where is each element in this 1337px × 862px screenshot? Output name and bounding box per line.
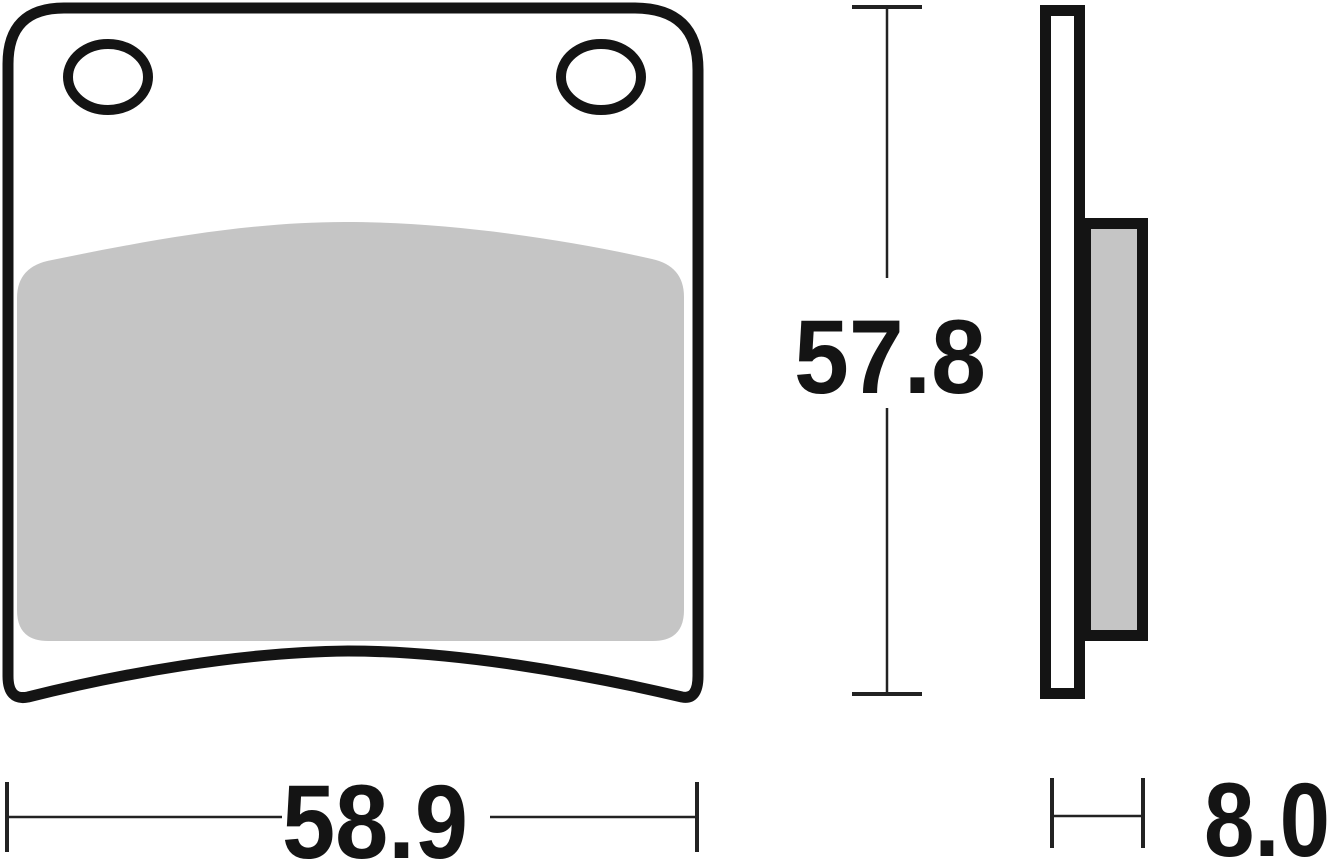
dimension-height-label: 57.8 [794,299,986,416]
friction-material-front [17,222,684,641]
dimension-thickness-label: 8.0 [1204,762,1330,862]
brake-pad-drawing: 57.8 58.9 8.0 [0,0,1337,862]
dimension-width: 58.9 [7,764,697,862]
mounting-hole-left [68,44,148,110]
side-view [1046,11,1143,694]
technical-drawing-canvas: 57.8 58.9 8.0 [0,0,1337,862]
friction-material-side [1086,224,1143,636]
mounting-hole-right [561,44,641,110]
backing-plate-side [1046,11,1080,694]
dimension-thickness: 8.0 [1052,762,1330,862]
dimension-width-label: 58.9 [282,764,468,862]
front-view [8,8,698,698]
dimension-height: 57.8 [794,7,986,694]
